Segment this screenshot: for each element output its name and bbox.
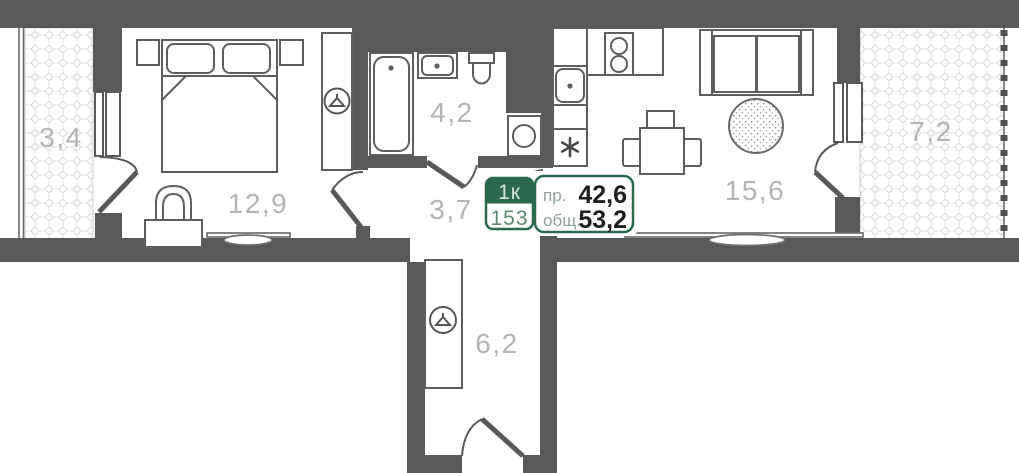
wall-entrance-right [523,455,557,473]
kitchen-column [553,28,587,166]
sofa [700,30,813,95]
wall-corridor-left [407,262,425,473]
room-label-hallway: 3,7 [429,194,472,225]
wall-bathroom-kitchen [541,28,553,168]
room-label-kitchen-living: 15,6 [725,175,786,206]
bed [162,40,277,172]
badge-living-area: 42,6 [578,181,627,209]
badge-unit-type: 1к [498,181,521,204]
wall-balcony-right-stub [835,197,860,233]
room-label-bedroom: 12,9 [228,188,289,219]
door-bedroom-balcony [99,157,137,212]
bath-sink [418,53,457,78]
blanket [162,76,277,172]
wall-balcony-right-divider [837,28,860,83]
door-bedroom [332,172,363,227]
dining-table [640,128,684,174]
pillow-right [223,44,270,73]
dining-set [623,111,701,174]
desk-chair [156,186,191,222]
burner-icon [611,38,627,54]
wall-bathroom-bottom-right [478,156,553,168]
wardrobe-corridor [425,260,462,388]
room-label-balcony-left: 3,4 [39,122,82,153]
wall-entrance-left [407,455,462,473]
nightstand-left [137,40,159,65]
badge-living-label: пр. [543,186,566,205]
chair-top [647,111,674,129]
wall-bottom-left [0,238,410,262]
balcony-left-glazing [19,28,24,238]
chair-left [623,139,641,166]
pillow-left [167,44,214,73]
door-bathroom [427,162,477,187]
entrance-door [462,419,523,456]
badge-total-label: общ. [543,211,581,230]
kitchen-sink [553,66,587,105]
washing-machine [508,116,541,156]
window-bedroom-balcony [95,92,120,156]
wall-top [0,0,1019,28]
room-label-corridor: 6,2 [475,328,518,359]
room-label-bathroom: 4,2 [430,97,473,128]
floor-plan-svg: 3,4 12,9 4,2 3,7 15,6 7,2 6,2 1к 153 пр.… [0,0,1019,473]
fridge [553,129,587,166]
rug [729,99,783,153]
wall-bathroom-bottom-left [368,156,427,168]
unit-badge: 1к 153 пр. 42,6 общ. 53,2 [479,171,639,236]
desk [145,220,202,247]
room-label-balcony-right: 7,2 [909,116,952,147]
wall-balcony-left-stub [95,213,122,240]
wall-corridor-right [540,262,557,473]
toilet [469,53,494,84]
duct-shaft [506,44,543,113]
floor-plan-page: 3,4 12,9 4,2 3,7 15,6 7,2 6,2 1к 153 пр.… [0,0,1019,473]
wall-balcony-left-divider [93,28,122,92]
wall-bedroom-bathroom [352,28,368,170]
window-living-balcony [834,83,862,142]
badge-unit-number: 153 [490,207,528,230]
nightstand-right [280,40,303,65]
wall-bedroom-door-stub [356,226,370,240]
badge-total-area: 53,2 [578,206,627,234]
burner-icon [611,56,627,72]
bathtub [370,53,413,155]
door-living-balcony [815,143,843,198]
kitchen-cabinet [553,105,587,129]
wardrobe-bedroom [322,33,352,170]
chair-right [683,139,701,166]
